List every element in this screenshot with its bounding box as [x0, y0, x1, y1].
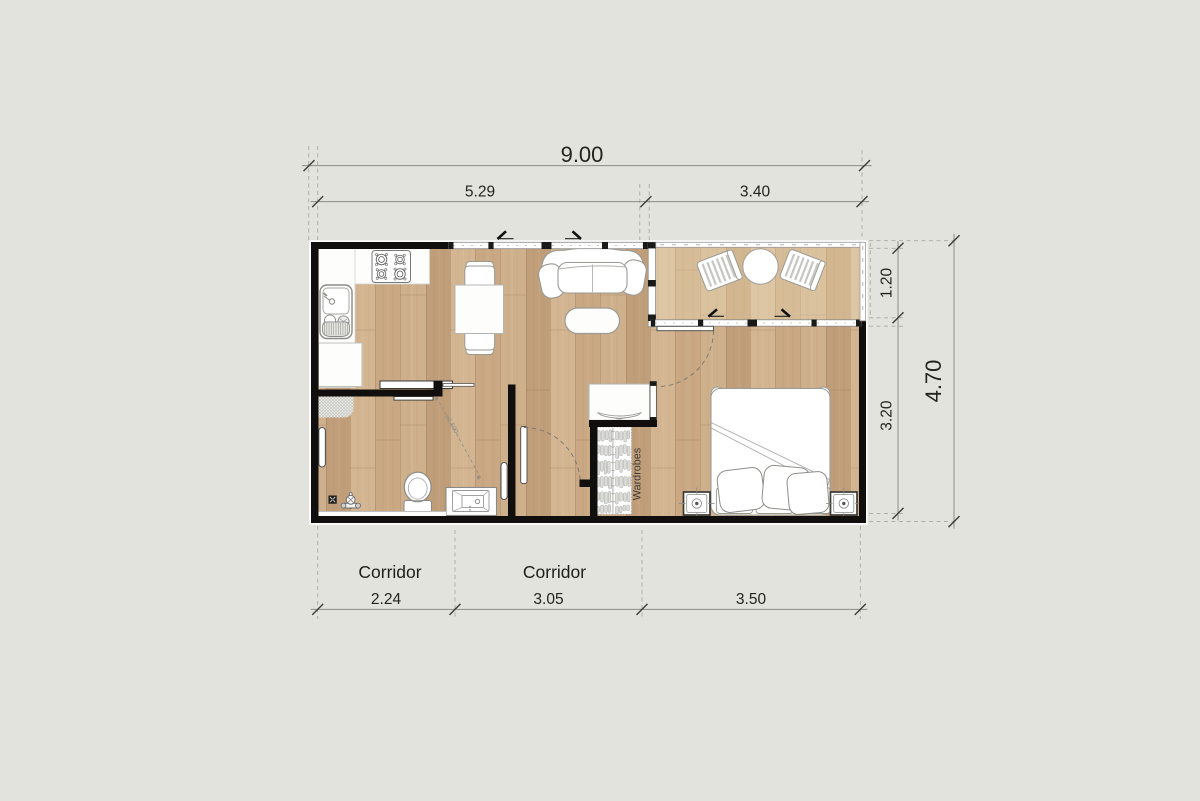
svg-text:9.00: 9.00 — [561, 142, 604, 167]
svg-text:3.05: 3.05 — [533, 591, 563, 608]
svg-text:1.20: 1.20 — [879, 268, 896, 299]
svg-text:Wardrobes: Wardrobes — [632, 447, 644, 500]
svg-text:3.40: 3.40 — [740, 184, 771, 201]
svg-text:2.24: 2.24 — [371, 591, 402, 608]
svg-text:3.20: 3.20 — [879, 400, 896, 431]
svg-text:5.29: 5.29 — [465, 184, 495, 201]
svg-text:Corridor: Corridor — [358, 562, 421, 582]
svg-text:3.50: 3.50 — [736, 591, 767, 608]
svg-text:Corridor: Corridor — [523, 562, 586, 582]
svg-text:4.70: 4.70 — [921, 360, 946, 403]
